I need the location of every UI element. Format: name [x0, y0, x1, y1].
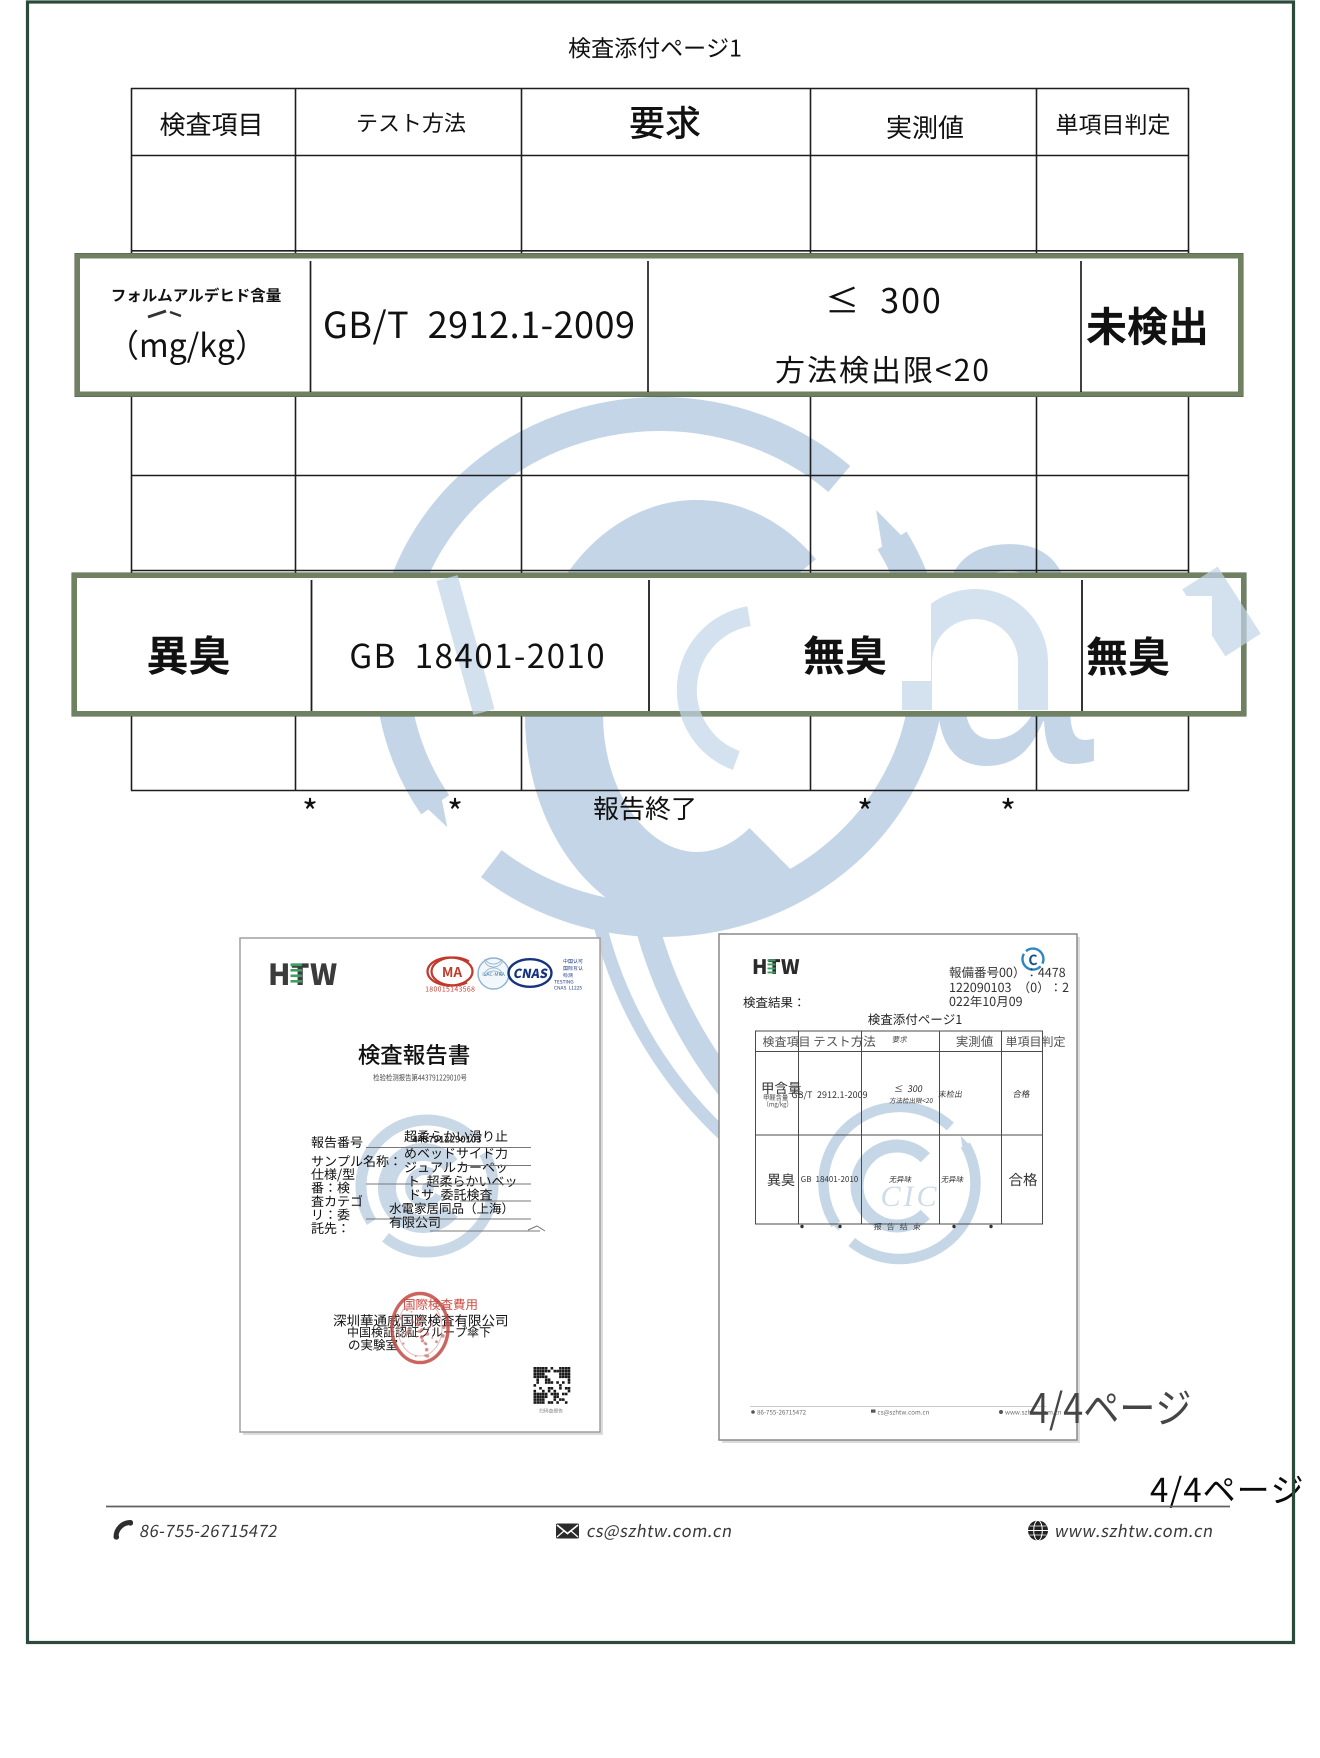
svg-text:CIC: CIC	[880, 1180, 939, 1213]
